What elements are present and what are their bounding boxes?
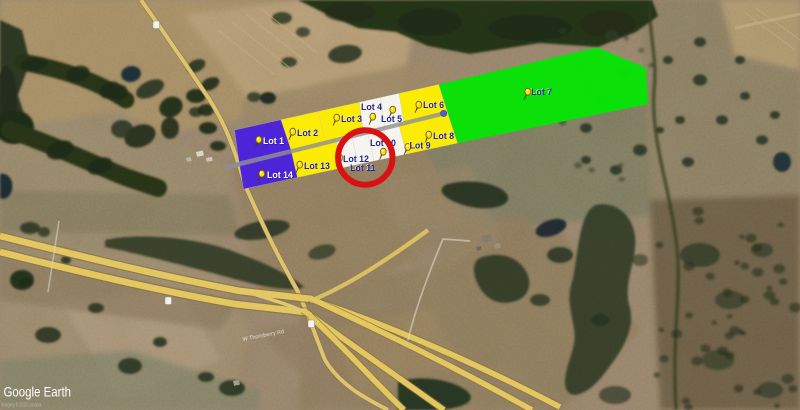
svg-text:Lot 11: Lot 11: [350, 163, 376, 173]
svg-text:Lot 4: Lot 4: [361, 102, 382, 112]
svg-text:Lot 1: Lot 1: [263, 136, 284, 146]
svg-text:Lot 9: Lot 9: [410, 141, 431, 151]
svg-text:Lot 5: Lot 5: [381, 114, 402, 124]
svg-text:Lot 7: Lot 7: [531, 87, 552, 97]
svg-text:Lot 3: Lot 3: [341, 114, 362, 124]
svg-text:Google Earth: Google Earth: [4, 383, 72, 399]
svg-text:Imagery © 2023 Landsat: Imagery © 2023 Landsat: [2, 402, 42, 409]
svg-text:Lot 14: Lot 14: [267, 170, 293, 180]
svg-text:Lot 8: Lot 8: [433, 131, 454, 141]
svg-text:Lot 6: Lot 6: [423, 100, 444, 110]
svg-text:Lot 13: Lot 13: [304, 161, 330, 171]
svg-text:Lot 2: Lot 2: [297, 128, 318, 138]
